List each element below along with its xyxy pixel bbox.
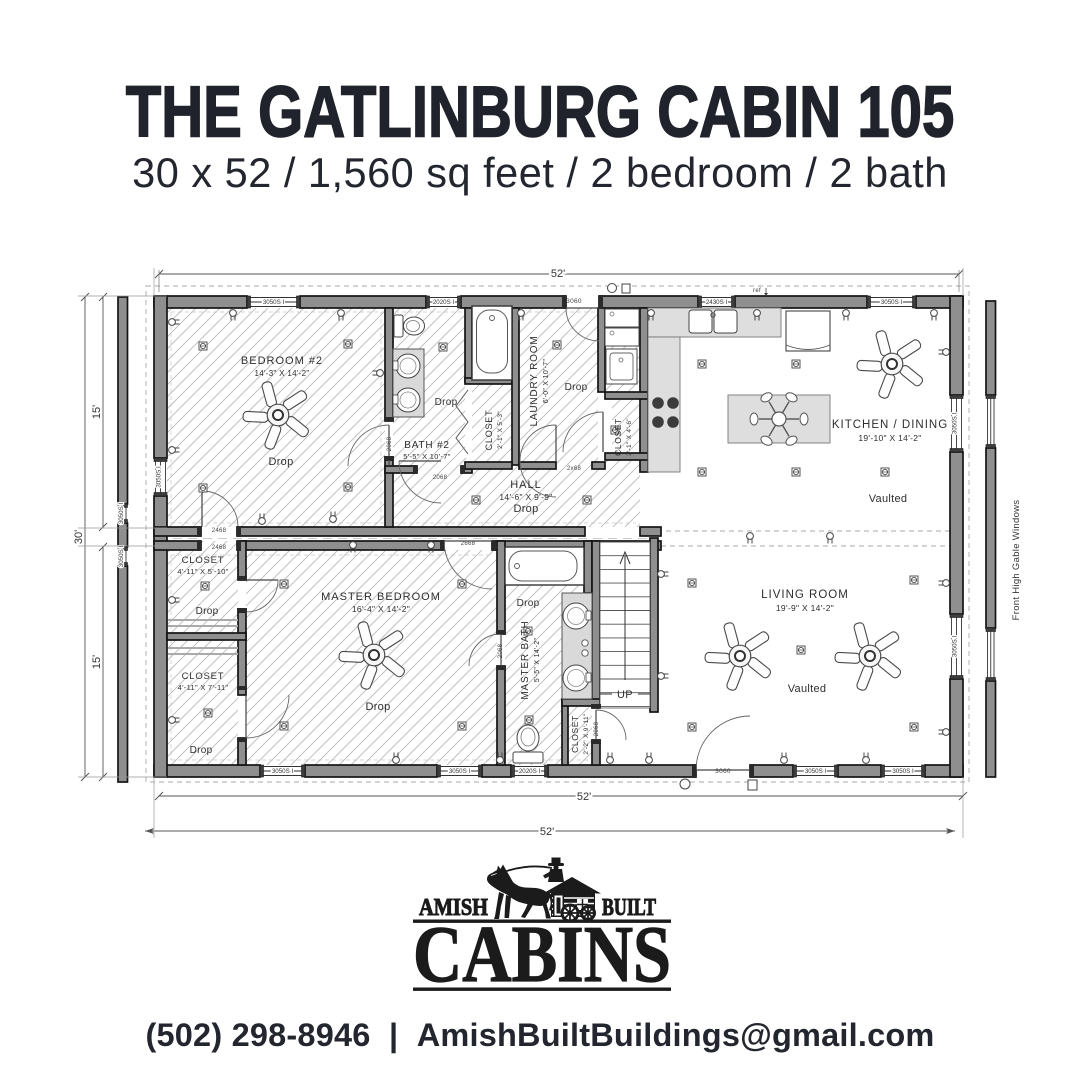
svg-text:UP: UP	[617, 689, 633, 701]
svg-text:KITCHEN / DINING: KITCHEN / DINING	[832, 419, 948, 431]
svg-text:3050S I: 3050S I	[156, 466, 163, 488]
svg-text:Vaulted: Vaulted	[788, 683, 827, 695]
svg-text:HALL: HALL	[510, 479, 542, 491]
svg-text:3050S I: 3050S I	[952, 636, 959, 658]
svg-text:2468: 2468	[212, 545, 227, 551]
svg-text:CLOSET: CLOSET	[570, 715, 580, 753]
svg-text:3050S I: 3050S I	[952, 413, 959, 435]
svg-text:2x68: 2x68	[567, 466, 582, 472]
svg-text:Drop: Drop	[513, 503, 538, 515]
svg-text:15': 15'	[91, 405, 103, 419]
svg-text:6'-0" X 10'-7": 6'-0" X 10'-7"	[543, 359, 550, 404]
svg-text:Drop: Drop	[196, 606, 219, 617]
svg-text:3050S I: 3050S I	[805, 768, 827, 775]
svg-text:LAUNDRY ROOM: LAUNDRY ROOM	[529, 336, 540, 427]
svg-text:Front High Gable Windows: Front High Gable Windows	[1011, 500, 1022, 621]
svg-text:3050S I: 3050S I	[892, 768, 914, 775]
svg-text:BATH #2: BATH #2	[404, 440, 449, 451]
svg-text:MASTER BEDROOM: MASTER BEDROOM	[321, 591, 441, 603]
svg-text:2'-1" X 4'-6": 2'-1" X 4'-6"	[626, 418, 633, 456]
svg-text:4'-11" X 5'-10": 4'-11" X 5'-10"	[177, 567, 228, 576]
svg-text:Vaulted: Vaulted	[869, 493, 908, 505]
svg-text:CLOSET: CLOSET	[484, 410, 494, 451]
svg-text:2'-2" X 9'-11": 2'-2" X 9'-11"	[583, 713, 590, 755]
svg-text:2020S I: 2020S I	[519, 768, 541, 775]
svg-text:14'-6" X 9'-9": 14'-6" X 9'-9"	[499, 492, 552, 502]
svg-text:3050S I: 3050S I	[263, 299, 285, 306]
svg-text:ref: ref	[753, 288, 761, 294]
svg-text:CLOSET: CLOSET	[182, 555, 225, 566]
svg-text:CLOSET: CLOSET	[613, 418, 623, 456]
svg-text:3050S I: 3050S I	[118, 546, 125, 568]
svg-text:5'-5" X 10'-7": 5'-5" X 10'-7"	[403, 452, 450, 461]
svg-text:52': 52'	[540, 826, 554, 838]
svg-text:19'-9" X 14'-2": 19'-9" X 14'-2"	[776, 603, 834, 613]
svg-text:Drop: Drop	[565, 382, 588, 393]
svg-text:16'-4" X 14'-2": 16'-4" X 14'-2"	[352, 604, 410, 614]
svg-text:4'-11" X 7'-11": 4'-11" X 7'-11"	[178, 683, 229, 692]
svg-text:2'-1" X 5'-3": 2'-1" X 5'-3"	[497, 411, 504, 449]
svg-text:52': 52'	[551, 268, 565, 280]
svg-text:30': 30'	[73, 530, 85, 544]
svg-text:Drop: Drop	[268, 456, 293, 468]
svg-text:Drop: Drop	[517, 598, 540, 609]
svg-text:52': 52'	[577, 791, 591, 803]
svg-text:5'-5" X 14'-2": 5'-5" X 14'-2"	[534, 638, 541, 683]
svg-text:14'-3" X 14'-2": 14'-3" X 14'-2"	[254, 369, 309, 378]
svg-text:LIVING ROOM: LIVING ROOM	[761, 589, 849, 601]
svg-text:BEDROOM #2: BEDROOM #2	[241, 355, 323, 367]
svg-text:MASTER BATH: MASTER BATH	[520, 620, 531, 699]
svg-text:2068: 2068	[387, 436, 393, 451]
svg-text:3060: 3060	[715, 768, 731, 775]
svg-text:Drop: Drop	[435, 397, 458, 408]
svg-text:19'-10" X 14'-2": 19'-10" X 14'-2"	[858, 433, 921, 443]
svg-text:2668: 2668	[461, 541, 476, 547]
svg-text:2468: 2468	[212, 528, 227, 534]
svg-text:CABINS: CABINS	[413, 911, 671, 998]
svg-text:2430S I: 2430S I	[706, 299, 728, 306]
svg-text:Drop: Drop	[190, 745, 213, 756]
svg-text:2068: 2068	[498, 643, 504, 658]
svg-text:3060: 3060	[566, 298, 582, 305]
svg-text:3050S I: 3050S I	[118, 503, 125, 525]
svg-text:3050S I: 3050S I	[881, 299, 903, 306]
svg-text:2020S I: 2020S I	[433, 299, 455, 306]
svg-text:3050S I: 3050S I	[272, 768, 294, 775]
svg-text:15': 15'	[91, 655, 103, 669]
svg-text:3050S I: 3050S I	[449, 768, 471, 775]
svg-text:CLOSET: CLOSET	[182, 671, 225, 682]
svg-text:2068: 2068	[594, 721, 600, 736]
svg-text:Drop: Drop	[365, 701, 390, 713]
svg-text:2068: 2068	[433, 475, 448, 481]
